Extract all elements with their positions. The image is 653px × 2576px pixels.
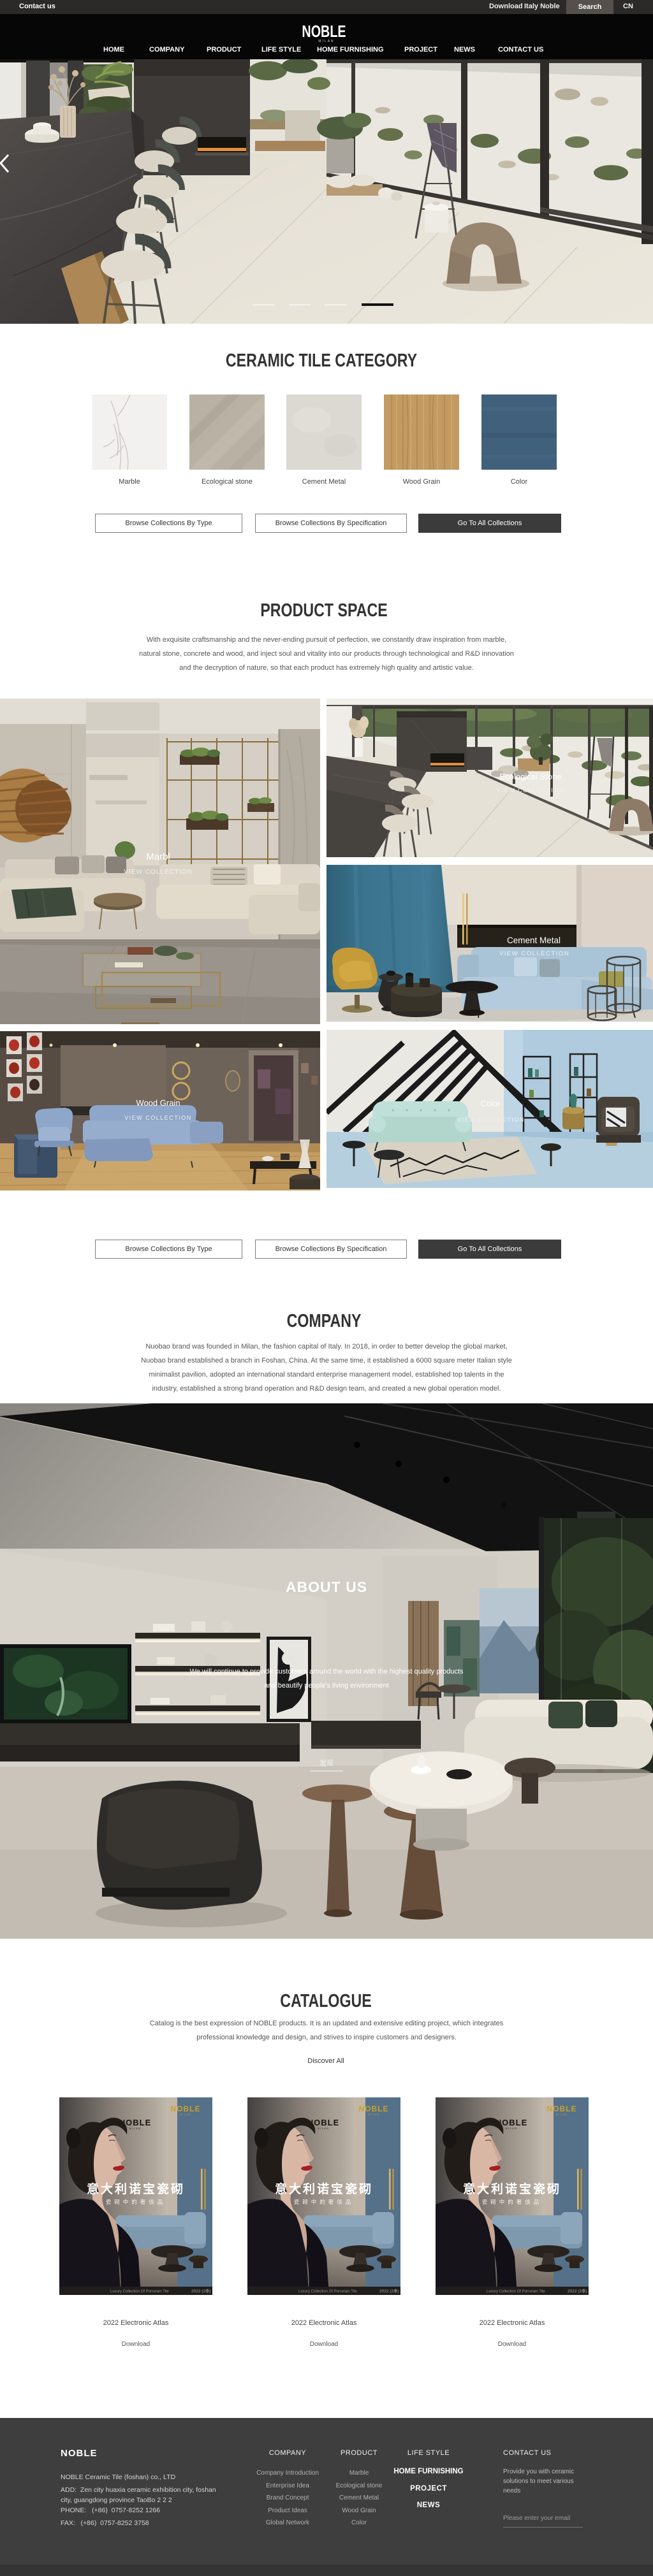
svg-text:VIEW COLLECTION: VIEW COLLECTION <box>457 1117 525 1123</box>
svg-text:发现: 发现 <box>319 1758 334 1767</box>
svg-text:Marbl: Marbl <box>146 851 170 862</box>
svg-text:Color: Color <box>480 1099 501 1108</box>
svg-text:and beautify people's living e: and beautify people's living environment <box>264 1682 388 1690</box>
svg-text:VIEW COLLECTION: VIEW COLLECTION <box>124 869 192 876</box>
svg-text:VIEW COLLECTION: VIEW COLLECTION <box>497 787 564 793</box>
svg-text:We will continue to provide cu: We will continue to provide customers ar… <box>189 1668 464 1675</box>
svg-text:Cement Metal: Cement Metal <box>507 936 561 945</box>
svg-text:Wood Grain: Wood Grain <box>136 1098 180 1108</box>
svg-text:ABOUT US: ABOUT US <box>286 1579 367 1595</box>
svg-text:VIEW COLLECTION: VIEW COLLECTION <box>124 1115 192 1121</box>
svg-text:VIEW COLLECTION: VIEW COLLECTION <box>499 950 569 957</box>
svg-text:Ecological Stone: Ecological Stone <box>500 772 562 781</box>
